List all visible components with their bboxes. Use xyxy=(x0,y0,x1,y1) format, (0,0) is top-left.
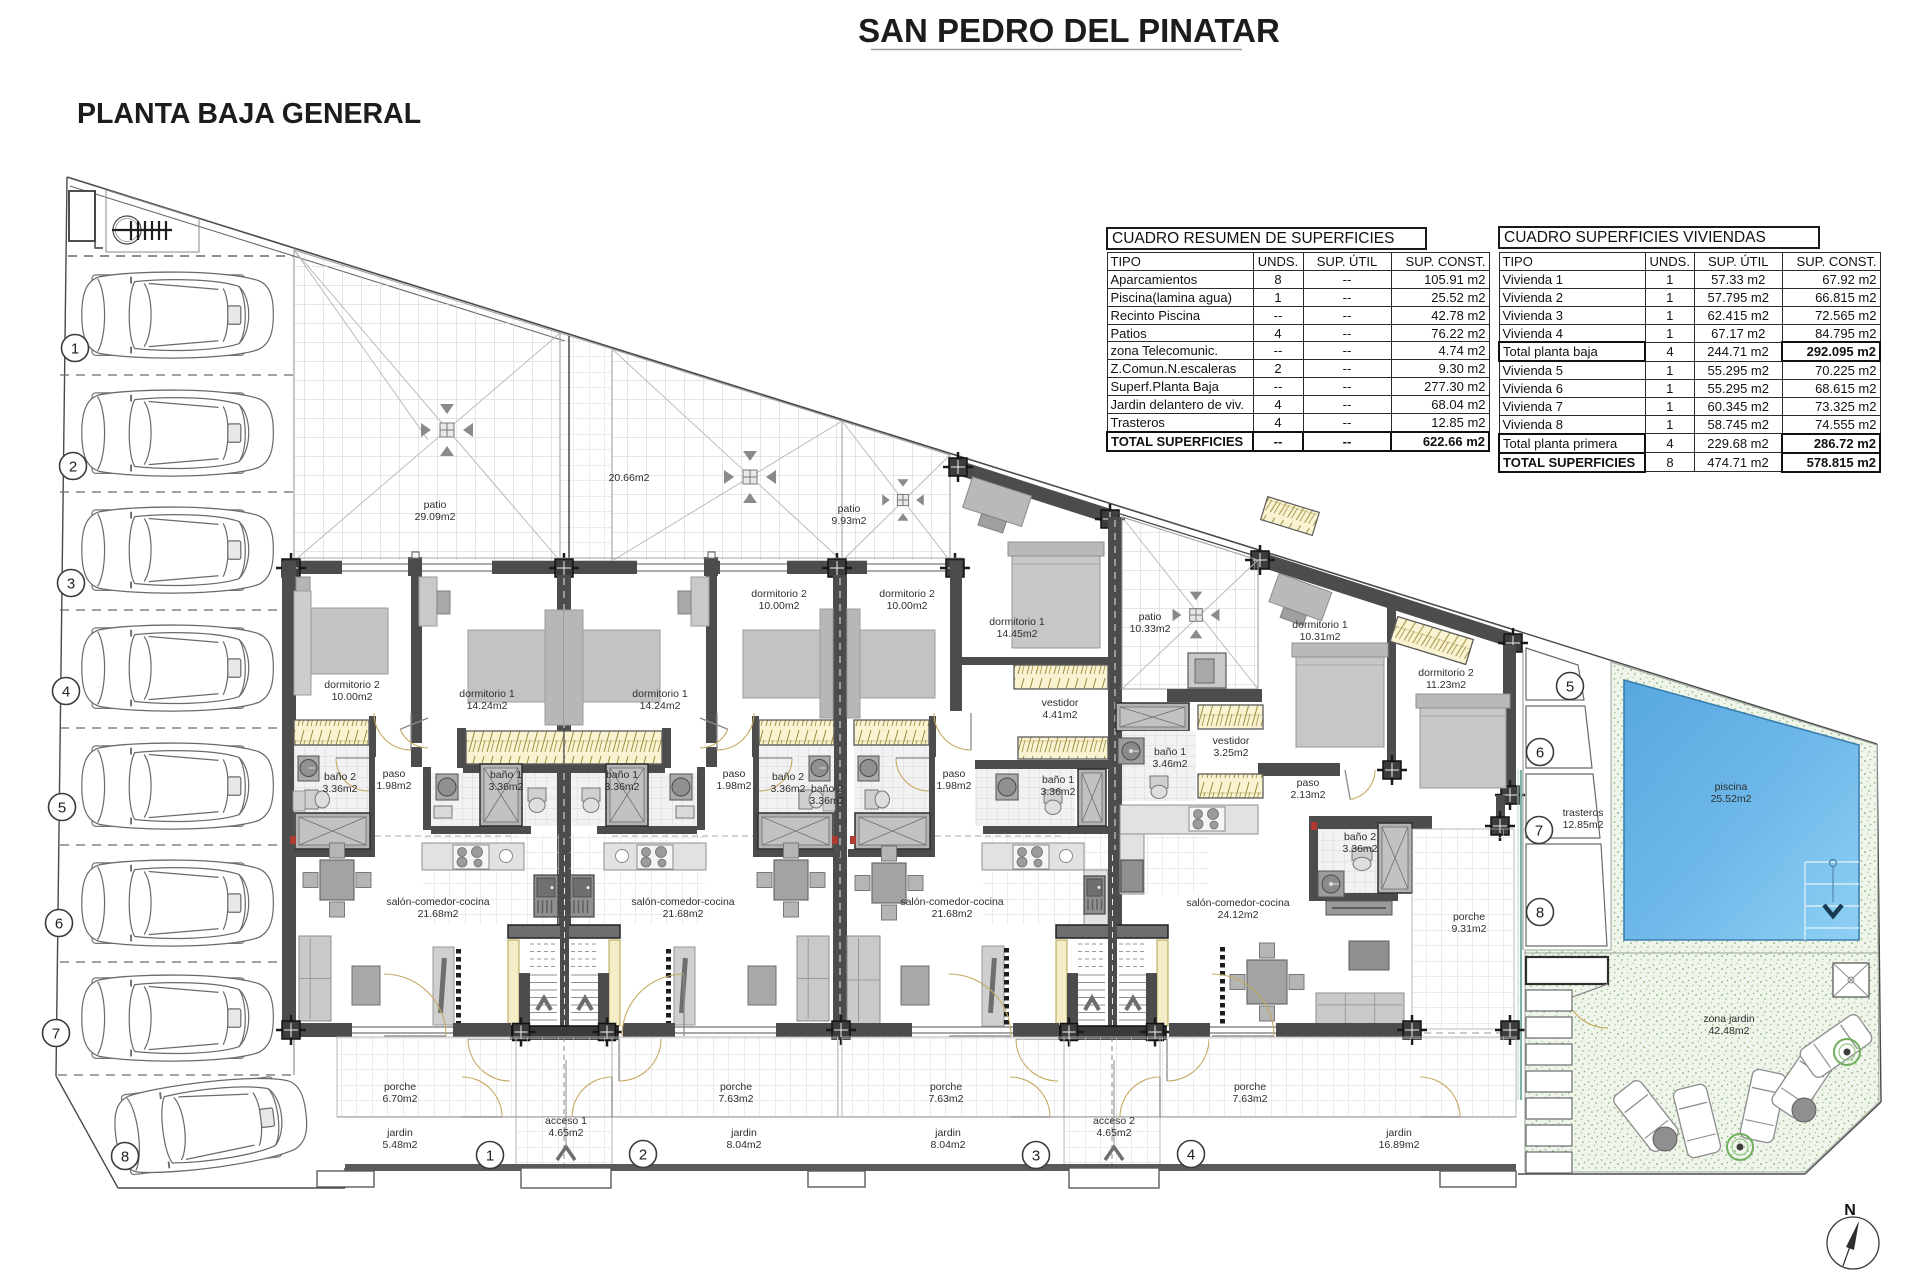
svg-text:salón-comedor-cocina: salón-comedor-cocina xyxy=(631,896,734,908)
svg-text:salón-comedor-cocina: salón-comedor-cocina xyxy=(900,896,1003,908)
svg-text:11.23m2: 11.23m2 xyxy=(1426,679,1466,691)
svg-text:5: 5 xyxy=(1566,679,1574,696)
svg-text:7.63m2: 7.63m2 xyxy=(1232,1093,1267,1105)
svg-text:baño 1: baño 1 xyxy=(606,769,638,781)
svg-text:14.24m2: 14.24m2 xyxy=(640,700,681,712)
svg-text:7: 7 xyxy=(1535,823,1543,840)
svg-text:25.52m2: 25.52m2 xyxy=(1711,793,1752,805)
svg-text:10.33m2: 10.33m2 xyxy=(1130,623,1171,635)
svg-text:patio: patio xyxy=(1139,611,1162,623)
svg-text:9.31m2: 9.31m2 xyxy=(1451,923,1486,935)
svg-text:24.12m2: 24.12m2 xyxy=(1218,909,1259,921)
svg-text:porche: porche xyxy=(384,1081,416,1093)
svg-text:29.09m2: 29.09m2 xyxy=(415,511,456,523)
svg-text:jardin: jardin xyxy=(386,1127,413,1139)
svg-text:4.65m2: 4.65m2 xyxy=(1096,1127,1131,1139)
svg-text:dormitorio 2: dormitorio 2 xyxy=(879,588,935,600)
svg-text:baño 1: baño 1 xyxy=(490,769,522,781)
svg-text:7: 7 xyxy=(52,1026,60,1043)
svg-text:3.36m2: 3.36m2 xyxy=(322,783,357,795)
svg-text:10.31m2: 10.31m2 xyxy=(1300,631,1341,643)
svg-text:9.93m2: 9.93m2 xyxy=(831,515,866,527)
svg-text:4: 4 xyxy=(62,684,70,701)
svg-text:vestidor: vestidor xyxy=(1042,697,1079,709)
svg-text:porche: porche xyxy=(720,1081,752,1093)
svg-text:14.45m2: 14.45m2 xyxy=(997,628,1038,640)
svg-text:paso: paso xyxy=(383,768,406,780)
svg-text:6.70m2: 6.70m2 xyxy=(382,1093,417,1105)
svg-text:zona jardin: zona jardin xyxy=(1703,1013,1755,1025)
svg-text:baño 2: baño 2 xyxy=(772,771,804,783)
svg-text:porche: porche xyxy=(930,1081,962,1093)
svg-text:dormitorio 1: dormitorio 1 xyxy=(1292,619,1348,631)
svg-text:4.41m2: 4.41m2 xyxy=(1042,709,1077,721)
svg-text:8: 8 xyxy=(121,1149,129,1166)
svg-text:baño 2: baño 2 xyxy=(1344,831,1376,843)
svg-text:acceso 1: acceso 1 xyxy=(545,1115,587,1127)
svg-text:8.04m2: 8.04m2 xyxy=(726,1139,761,1151)
svg-text:patio: patio xyxy=(424,499,447,511)
svg-text:salón-comedor-cocina: salón-comedor-cocina xyxy=(386,896,489,908)
svg-text:1.98m2: 1.98m2 xyxy=(716,780,751,792)
svg-text:paso: paso xyxy=(1297,777,1320,789)
svg-text:21.68m2: 21.68m2 xyxy=(663,908,704,920)
svg-text:2: 2 xyxy=(69,459,77,476)
svg-text:1: 1 xyxy=(71,341,79,358)
svg-text:3.46m2: 3.46m2 xyxy=(1152,758,1187,770)
svg-text:dormitorio 1: dormitorio 1 xyxy=(989,616,1045,628)
svg-text:5.48m2: 5.48m2 xyxy=(382,1139,417,1151)
svg-text:6: 6 xyxy=(55,916,63,933)
svg-text:6: 6 xyxy=(1536,745,1544,762)
svg-text:3.25m2: 3.25m2 xyxy=(1213,747,1248,759)
svg-text:3.36m2: 3.36m2 xyxy=(1040,786,1075,798)
svg-text:dormitorio 1: dormitorio 1 xyxy=(459,688,515,700)
svg-text:patio: patio xyxy=(838,503,861,515)
svg-text:1.98m2: 1.98m2 xyxy=(936,780,971,792)
svg-text:paso: paso xyxy=(943,768,966,780)
svg-text:2.13m2: 2.13m2 xyxy=(1290,789,1325,801)
svg-text:10.00m2: 10.00m2 xyxy=(887,600,928,612)
svg-text:SAN PEDRO DEL PINATAR: SAN PEDRO DEL PINATAR xyxy=(858,12,1280,49)
svg-text:3.36m2: 3.36m2 xyxy=(1342,843,1377,855)
svg-text:dormitorio 1: dormitorio 1 xyxy=(632,688,688,700)
svg-text:4.65m2: 4.65m2 xyxy=(548,1127,583,1139)
svg-text:42.48m2: 42.48m2 xyxy=(1709,1025,1750,1037)
svg-text:baño 2: baño 2 xyxy=(324,771,356,783)
svg-text:salón-comedor-cocina: salón-comedor-cocina xyxy=(1186,897,1289,909)
svg-text:dormitorio 2: dormitorio 2 xyxy=(1418,667,1474,679)
svg-text:3: 3 xyxy=(67,576,75,593)
svg-text:12.85m2: 12.85m2 xyxy=(1563,819,1604,831)
svg-text:PLANTA BAJA GENERAL: PLANTA BAJA GENERAL xyxy=(77,98,421,130)
svg-text:7.63m2: 7.63m2 xyxy=(928,1093,963,1105)
svg-text:1: 1 xyxy=(486,1148,494,1165)
svg-text:21.68m2: 21.68m2 xyxy=(932,908,973,920)
svg-text:piscina: piscina xyxy=(1715,781,1748,793)
svg-text:jardin: jardin xyxy=(1385,1127,1412,1139)
svg-text:jardin: jardin xyxy=(934,1127,961,1139)
svg-text:3: 3 xyxy=(1032,1148,1040,1165)
svg-text:10.00m2: 10.00m2 xyxy=(332,691,373,703)
svg-text:jardin: jardin xyxy=(730,1127,757,1139)
svg-text:porche: porche xyxy=(1234,1081,1266,1093)
svg-text:3.36m2: 3.36m2 xyxy=(770,783,805,795)
svg-text:paso: paso xyxy=(723,768,746,780)
svg-text:baño 2: baño 2 xyxy=(811,783,843,795)
svg-text:3.36m2: 3.36m2 xyxy=(488,781,523,793)
svg-text:8: 8 xyxy=(1536,905,1544,922)
svg-text:dormitorio 2: dormitorio 2 xyxy=(751,588,807,600)
svg-text:16.89m2: 16.89m2 xyxy=(1379,1139,1420,1151)
svg-text:10.00m2: 10.00m2 xyxy=(759,600,800,612)
svg-text:3.36m2: 3.36m2 xyxy=(809,795,844,807)
svg-text:acceso 2: acceso 2 xyxy=(1093,1115,1135,1127)
svg-text:1.98m2: 1.98m2 xyxy=(376,780,411,792)
svg-text:20.66m2: 20.66m2 xyxy=(609,472,650,484)
svg-text:baño 1: baño 1 xyxy=(1154,746,1186,758)
svg-text:baño 1: baño 1 xyxy=(1042,774,1074,786)
svg-text:5: 5 xyxy=(58,800,66,817)
svg-text:4: 4 xyxy=(1187,1147,1195,1164)
svg-text:14.24m2: 14.24m2 xyxy=(467,700,508,712)
svg-text:trasteros: trasteros xyxy=(1563,807,1604,819)
svg-text:7.63m2: 7.63m2 xyxy=(718,1093,753,1105)
svg-text:vestidor: vestidor xyxy=(1213,735,1250,747)
svg-text:21.68m2: 21.68m2 xyxy=(418,908,459,920)
svg-text:3.36m2: 3.36m2 xyxy=(604,781,639,793)
svg-text:2: 2 xyxy=(639,1147,647,1164)
svg-text:porche: porche xyxy=(1453,911,1485,923)
svg-text:N: N xyxy=(1844,1202,1856,1219)
svg-text:dormitorio 2: dormitorio 2 xyxy=(324,679,380,691)
svg-text:8.04m2: 8.04m2 xyxy=(930,1139,965,1151)
